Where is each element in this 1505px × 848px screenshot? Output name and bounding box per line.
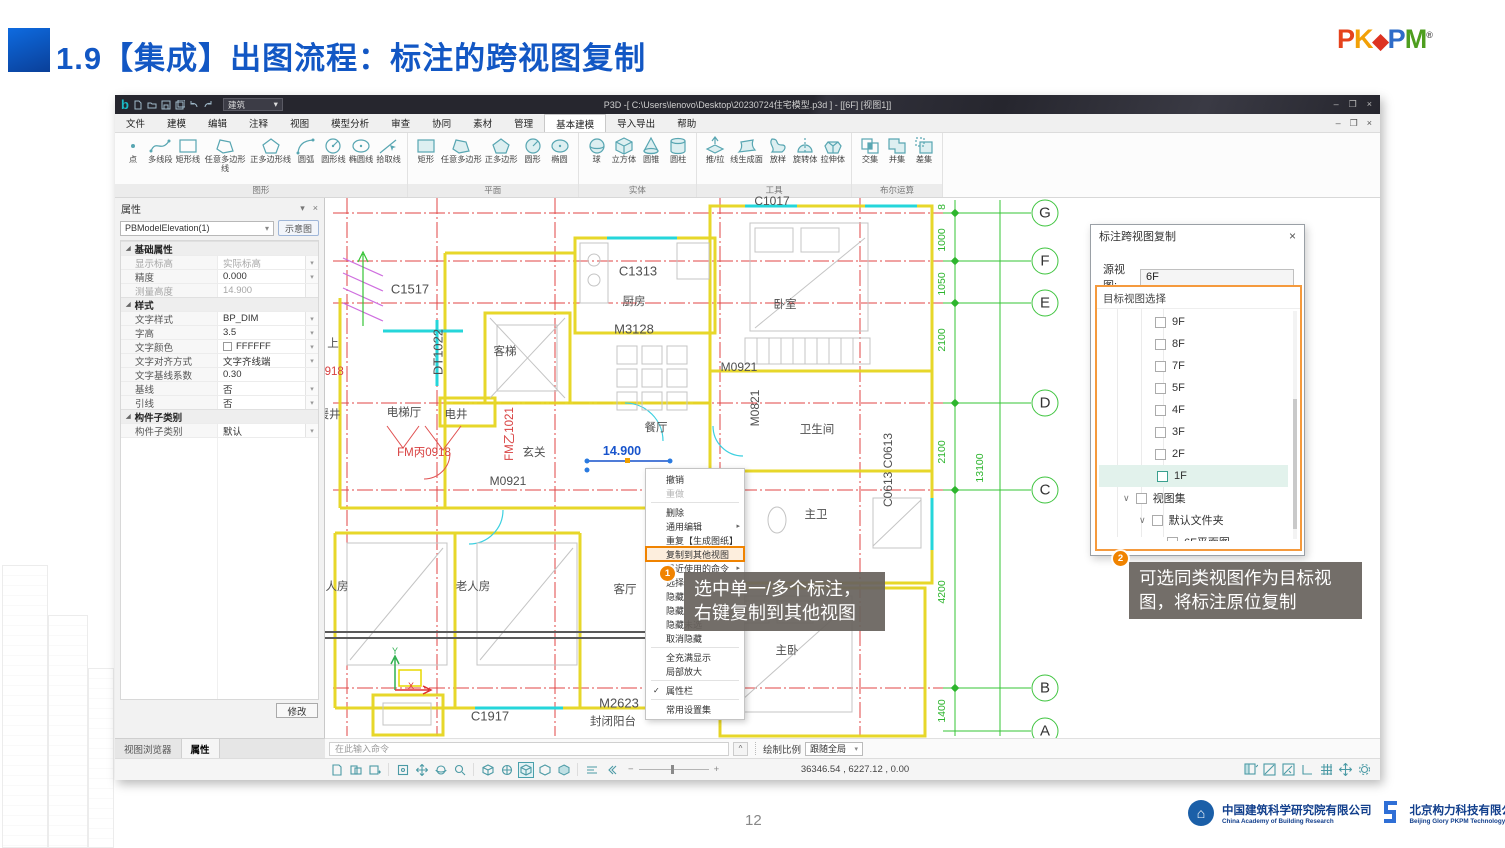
cursor-coordinates: 36346.54 , 6227.12 , 0.00 (745, 764, 965, 775)
room-label: 厨房 (623, 293, 646, 309)
checkbox[interactable] (1152, 515, 1163, 526)
pkpm-logo: PK◆PM® (1337, 24, 1433, 55)
scale-label: 绘制比例 (763, 742, 801, 756)
pan-icon[interactable] (415, 763, 429, 777)
tool-rect-line[interactable]: 矩形线 (175, 136, 202, 165)
grid-letter: D (1040, 395, 1051, 412)
chevron-down-icon: ▾ (274, 99, 278, 110)
window-title: P3D -[ C:\Users\lenovo\Desktop\20230724住… (115, 98, 1380, 111)
checkbox[interactable] (1136, 493, 1147, 504)
tree-node-default-folder[interactable]: ∨默认文件夹 (1139, 509, 1224, 531)
room-label: 人房 (326, 578, 349, 594)
view-tree: 9F 8F 7F 5F 4F 3F 2F 1F ∨视图集 ∨默认文件夹 6F平面… (1097, 309, 1300, 541)
zoom-extents-icon[interactable] (396, 763, 410, 777)
cross-view-copy-dialog: 标注跨视图复制 × 源视图: 目标视图选择 9F 8F 7F 5F 4F 3F … (1090, 224, 1305, 556)
checkmark-icon: ✓ (653, 686, 660, 695)
element-type-dropdown[interactable]: PBModelElevation(1)▾ (120, 221, 274, 236)
ctx-repeat[interactable]: 重复【生成图纸】 (646, 533, 744, 547)
polygon-outline-icon (213, 136, 237, 156)
chevron-expand-icon[interactable]: ∨ (1123, 493, 1130, 504)
tree-item-5f[interactable]: 5F (1155, 377, 1185, 399)
building-watermark (88, 668, 114, 848)
tab-view-browser[interactable]: 视图浏览器 (115, 739, 181, 758)
dimension-text: 1000 (936, 228, 948, 251)
tool-label: 多线段 (148, 156, 173, 165)
collapse-triangle-icon: ◢ (126, 413, 131, 420)
tool-loft[interactable]: 放样 (765, 136, 791, 165)
grid-bubble: G (1032, 200, 1059, 227)
rectangle-outline-icon (176, 136, 200, 156)
chevron-down-icon[interactable]: ▾ (305, 326, 318, 339)
view-cube-icon[interactable] (481, 763, 495, 777)
grid-bubble: F (1032, 248, 1059, 275)
grid-bubble: E (1032, 290, 1059, 317)
tool-sphere[interactable]: 球 (584, 136, 610, 165)
revolve-icon (793, 136, 817, 156)
tool-cylinder[interactable]: 圆柱 (665, 136, 691, 165)
tool-label: 拾取线 (376, 156, 401, 165)
logo-letter: K (1354, 24, 1373, 54)
dimension-text: 2100 (936, 328, 948, 351)
ortho-icon[interactable] (1301, 763, 1315, 777)
tool-point[interactable]: 点 (120, 136, 146, 165)
ctx-copy-to-other-views[interactable]: 复制到其他视图 (646, 547, 744, 561)
menu-analysis[interactable]: 模型分析 (320, 114, 380, 132)
building-watermark (2, 565, 48, 848)
display-settings-icon[interactable] (585, 763, 599, 777)
tool-regular-polygon-line[interactable]: 正多边形线 (249, 136, 292, 165)
tool-polyline[interactable]: 多线段 (147, 136, 174, 165)
step-badge-2: 2 (1113, 551, 1128, 566)
tool-label: 圆柱 (670, 156, 686, 165)
glory-pkpm-logo-icon (1380, 800, 1402, 826)
tree-node-viewset[interactable]: ∨视图集 (1123, 487, 1186, 509)
tool-label: 球 (592, 156, 600, 165)
command-input[interactable] (329, 742, 729, 756)
menu-material[interactable]: 素材 (462, 114, 503, 132)
cube-icon (612, 136, 636, 156)
dialog-scrollbar[interactable] (1293, 311, 1297, 539)
fire-door-tag: FM丙0918 (397, 444, 451, 460)
tab-properties[interactable]: 属性 (181, 739, 220, 758)
zoom-icon[interactable] (453, 763, 467, 777)
dialog-close-icon[interactable]: × (1289, 229, 1296, 243)
ctx-undo[interactable]: 撤销 (646, 472, 744, 486)
grid-icon[interactable] (1320, 763, 1334, 777)
add-window-icon[interactable] (368, 763, 382, 777)
ctx-properties-bar[interactable]: ✓属性栏 (646, 683, 744, 697)
tool-line-to-surface[interactable]: 线生成面 (729, 136, 764, 165)
circle-filled-icon (521, 136, 545, 156)
chevron-down-icon[interactable]: ▾ (305, 256, 318, 269)
tool-label: 椭圆 (551, 156, 567, 165)
room-label: 卫生间 (800, 421, 835, 437)
menu-view[interactable]: 视图 (279, 114, 320, 132)
menu-annotate[interactable]: 注释 (238, 114, 279, 132)
page-title: 1.9【集成】出图流程：标注的跨视图复制 (56, 33, 646, 78)
logo-letter: M (1405, 24, 1427, 54)
room-label: 客厅 (614, 581, 637, 597)
element-tag: M0921 (490, 474, 527, 488)
registered-mark: ® (1426, 30, 1433, 40)
doc-restore-button[interactable]: ❐ (1350, 118, 1358, 129)
tool-label: 交集 (862, 156, 878, 165)
tree-item-6f-plan[interactable]: 6F平面图 (1167, 531, 1230, 541)
loft-icon (766, 136, 790, 156)
tool-ellipse[interactable]: 椭圆 (547, 136, 573, 165)
dimension-text: 1050 (936, 272, 948, 295)
grid-letter: C (1040, 482, 1051, 499)
discipline-value: 建筑 (228, 99, 245, 111)
room-label: 玄关 (523, 444, 546, 460)
building-watermark (48, 615, 88, 848)
tool-label: 圆形 (524, 156, 540, 165)
ctx-zoom-window[interactable]: 局部放大 (646, 664, 744, 678)
ribbon: 点 多线段 矩形线 任意多边形线 正多边形线 圆弧 圆形线 椭圆线 拾取线 图形… (115, 133, 1380, 198)
viewport-toggle-icon[interactable] (1244, 763, 1258, 777)
property-row: 精度0.000▾ (121, 269, 318, 283)
tool-arc[interactable]: 圆弧 (293, 136, 319, 165)
ellipse-filled-icon (548, 136, 572, 156)
logo-diamond-icon: ◆ (1373, 30, 1388, 53)
menu-manage[interactable]: 管理 (503, 114, 544, 132)
ctx-label: 属性栏 (666, 684, 693, 697)
room-label: 老人房 (456, 578, 491, 594)
tool-label: 椭圆线 (349, 156, 374, 165)
menu-collaborate[interactable]: 协同 (421, 114, 462, 132)
navigate-icon[interactable] (1339, 763, 1353, 777)
axis-x-label: X (408, 681, 414, 691)
tool-cube[interactable]: 立方体 (611, 136, 638, 165)
grid-letter: B (1040, 680, 1050, 697)
shaded-view-icon[interactable] (519, 763, 533, 777)
orbit-icon[interactable] (434, 763, 448, 777)
tree-item-9f[interactable]: 9F (1155, 311, 1185, 333)
close-button[interactable]: × (1367, 99, 1372, 110)
property-row: 测量高度14.900 (121, 283, 318, 297)
panel-collapse-icon[interactable]: ▾ (300, 203, 305, 214)
tree-item-1f[interactable]: 1F (1099, 465, 1288, 487)
tool-ellipse-line[interactable]: 椭圆线 (348, 136, 375, 165)
dimension-text: 13100 (974, 453, 986, 482)
chevron-down-icon: ▾ (265, 224, 269, 233)
callout-text: 右键复制到其他视图 (694, 601, 875, 625)
property-row: 文字样式BP_DIM▾ (121, 311, 318, 325)
chevron-down-icon[interactable]: ▾ (305, 270, 318, 283)
chevron-down-icon[interactable]: ▾ (305, 340, 318, 353)
tool-label: 任意多边形线 (203, 156, 247, 174)
grid-letter: A (1040, 723, 1050, 740)
checkbox[interactable] (1155, 449, 1166, 460)
menu-file[interactable]: 文件 (115, 114, 156, 132)
tree-item-8f[interactable]: 8F (1155, 333, 1185, 355)
property-grid-empty (121, 437, 318, 699)
tree-item-2f[interactable]: 2F (1155, 443, 1185, 465)
rectangle-filled-icon (414, 136, 438, 156)
room-label: 上 (327, 335, 339, 351)
zoom-slider[interactable]: − + (628, 764, 719, 775)
pentagon-filled-icon (489, 136, 513, 156)
panel-close-icon[interactable]: × (313, 203, 318, 214)
target-view-label: 目标视图选择 (1097, 287, 1300, 309)
property-row: 字高3.5▾ (121, 325, 318, 339)
chevron-down-icon[interactable]: ▾ (305, 312, 318, 325)
tool-revolve[interactable]: 旋转体 (792, 136, 819, 165)
tool-subtract[interactable]: 差集 (911, 136, 937, 165)
menubar: 文件 建模 编辑 注释 视图 模型分析 审查 协同 素材 管理 基本建模 导入导… (115, 114, 1380, 133)
minimize-button[interactable]: – (1334, 99, 1339, 110)
element-type-value: PBModelElevation(1) (125, 223, 210, 233)
callout-text: 图，将标注原位复制 (1139, 591, 1352, 615)
chevron-down-icon[interactable]: ▾ (305, 424, 318, 437)
quick-access-toolbar: b 建筑 ▾ (115, 98, 283, 111)
modify-button[interactable]: 修改 (276, 703, 318, 718)
submenu-arrow-icon: ▸ (736, 564, 740, 572)
ribbon-group-label: 实体 (579, 184, 697, 197)
grid-bubble: C (1032, 477, 1059, 504)
slope-snap-icon[interactable] (1263, 763, 1277, 777)
chevron-down-icon[interactable]: ▾ (305, 354, 318, 367)
scale-value: 跟随全局 (810, 742, 846, 755)
element-tag: C1313 (619, 264, 657, 279)
tool-label: 点 (129, 156, 137, 165)
dialog-title: 标注跨视图复制 (1099, 228, 1176, 244)
room-label: 封闭阳台 (590, 713, 636, 729)
panel-tabs: 视图浏览器 属性 (115, 738, 325, 758)
tool-label: 并集 (889, 156, 905, 165)
ctx-common-settings[interactable]: 常用设置集 (646, 702, 744, 716)
source-view-input[interactable] (1140, 269, 1294, 286)
menu-help[interactable]: 帮助 (666, 114, 707, 132)
element-tag: DT1022 (431, 329, 446, 375)
tool-label: 拉伸体 (820, 156, 845, 165)
room-label: 餐厅 (645, 419, 668, 435)
collapse-chevrons-icon[interactable] (604, 763, 618, 777)
surface-from-lines-icon (735, 136, 759, 156)
view-sphere-icon[interactable] (500, 763, 514, 777)
chevron-expand-icon[interactable]: ∨ (1139, 515, 1146, 526)
checkbox[interactable] (1167, 537, 1178, 542)
tool-label: 推/拉 (706, 156, 725, 165)
target-view-groupbox: 目标视图选择 9F 8F 7F 5F 4F 3F 2F 1F ∨视图集 ∨默认文… (1095, 285, 1302, 551)
page-number: 12 (745, 812, 762, 829)
tool-circle-line[interactable]: 圆形线 (320, 136, 347, 165)
ribbon-group-label: 布尔运算 (852, 184, 942, 197)
tool-push-pull[interactable]: 推/拉 (702, 136, 728, 165)
checkbox[interactable] (1155, 339, 1166, 350)
scale-dropdown[interactable]: 跟随全局 ▾ (805, 742, 863, 756)
org-name-cn: 北京构力科技有限公司 (1410, 802, 1505, 818)
slider-thumb[interactable] (671, 765, 674, 774)
dimension-text: 8 (936, 204, 948, 210)
checkbox[interactable] (1155, 317, 1166, 328)
cylinder-icon (666, 136, 690, 156)
room-label: 电梯厅 (387, 404, 422, 420)
menu-import-export[interactable]: 导入导出 (606, 114, 666, 132)
arc-icon (294, 136, 318, 156)
ribbon-group-shapes: 点 多线段 矩形线 任意多边形线 正多边形线 圆弧 圆形线 椭圆线 拾取线 图形 (115, 133, 408, 197)
circle-outline-icon (321, 136, 345, 156)
command-collapse-icon[interactable]: ^ (733, 742, 748, 756)
solid-view-icon[interactable] (557, 763, 571, 777)
tool-union[interactable]: 并集 (884, 136, 910, 165)
ribbon-group-boolean: 交集 并集 差集 布尔运算 (852, 133, 943, 197)
redo-icon[interactable] (203, 100, 213, 110)
collapse-triangle-icon: ◢ (126, 245, 131, 252)
wireframe-view-icon[interactable] (538, 763, 552, 777)
polar-snap-icon[interactable] (1282, 763, 1296, 777)
checkbox[interactable] (1155, 427, 1166, 438)
doc-minimize-button[interactable]: – (1336, 118, 1341, 128)
menu-review[interactable]: 审查 (380, 114, 421, 132)
app-logo-icon[interactable]: b (121, 98, 129, 111)
checkbox[interactable] (1155, 405, 1166, 416)
zoom-out-icon[interactable]: − (628, 764, 634, 775)
property-row: 文字颜色FFFFFF▾ (121, 339, 318, 353)
selected-dimension[interactable]: 14.900 (603, 444, 641, 458)
discipline-dropdown[interactable]: 建筑 ▾ (223, 98, 283, 111)
logo-letter: P (1337, 24, 1354, 54)
tool-intersect[interactable]: 交集 (857, 136, 883, 165)
status-right-icons (1241, 763, 1380, 777)
tool-label: 正多边形线 (250, 156, 291, 165)
zoom-in-icon[interactable]: + (714, 764, 720, 775)
tool-rectangle[interactable]: 矩形 (413, 136, 439, 165)
polygon-filled-icon (449, 136, 473, 156)
ctx-zoom-extents[interactable]: 全充满显示 (646, 650, 744, 664)
push-pull-icon (703, 136, 727, 156)
save-as-icon[interactable] (175, 100, 185, 110)
ribbon-group-planes: 矩形 任意多边形 正多边形 圆形 椭圆 平面 (408, 133, 579, 197)
doc-close-button[interactable]: × (1367, 118, 1372, 128)
ctx-label: 通用编辑 (666, 520, 702, 533)
tool-label: 任意多边形 (441, 156, 482, 165)
command-bar: ^ 绘制比例 跟随全局 ▾ (325, 738, 1380, 758)
menu-model[interactable]: 建模 (156, 114, 197, 132)
callout-text: 选中单一/多个标注， (694, 577, 875, 601)
checkbox[interactable] (1155, 361, 1166, 372)
chevron-down-icon[interactable]: ▾ (305, 396, 318, 409)
tool-regular-polygon[interactable]: 正多边形 (484, 136, 519, 165)
polyline-icon (148, 136, 172, 156)
element-tag: M0921 (721, 360, 758, 374)
tree-item-4f[interactable]: 4F (1155, 399, 1185, 421)
property-row: 构件子类别默认▾ (121, 423, 318, 437)
property-row: 显示标高实际标高▾ (121, 255, 318, 269)
ctx-general-edit[interactable]: 通用编辑▸ (646, 519, 744, 533)
tool-cone[interactable]: 圆锥 (638, 136, 664, 165)
element-tag: C1017 (754, 194, 789, 208)
open-file-icon[interactable] (147, 100, 157, 110)
submenu-arrow-icon: ▸ (736, 522, 740, 530)
tool-any-polygon[interactable]: 任意多边形 (440, 136, 483, 165)
tool-label: 差集 (916, 156, 932, 165)
restore-button[interactable]: ❐ (1349, 99, 1357, 110)
section-title: 基础属性 (135, 242, 173, 256)
menu-edit[interactable]: 编辑 (197, 114, 238, 132)
dimension-text: 2100 (936, 440, 948, 463)
ribbon-group-label: 图形 (115, 184, 407, 197)
status-bar: − + 36346.54 , 6227.12 , 0.00 (115, 758, 1380, 780)
tool-label: 立方体 (612, 156, 637, 165)
section-header[interactable]: ◢样式 (121, 297, 318, 311)
gear-icon[interactable] (1358, 763, 1372, 777)
logo-letter: P (1388, 24, 1405, 54)
tree-item-7f[interactable]: 7F (1155, 355, 1185, 377)
sphere-icon (585, 136, 609, 156)
glory-text: 北京构力科技有限公司 Beijing Glory PKPM Technology… (1410, 802, 1505, 825)
title-accent-block (8, 28, 50, 72)
room-label: 电井 (445, 406, 468, 422)
ribbon-group-solids: 球 立方体 圆锥 圆柱 实体 (579, 133, 698, 197)
element-tag: M2623 (599, 696, 639, 711)
property-row: 引线否▾ (121, 395, 318, 409)
chevron-down-icon[interactable]: ▾ (305, 382, 318, 395)
checkbox[interactable] (1155, 383, 1166, 394)
section-title: 构件子类别 (135, 410, 183, 424)
checkbox[interactable] (1157, 471, 1168, 482)
properties-panel: 属性 ▾× PBModelElevation(1)▾ 示意图 ◢基础属性 显示标… (115, 198, 325, 738)
room-label: 主卧 (776, 642, 799, 658)
tool-circle[interactable]: 圆形 (520, 136, 546, 165)
section-header[interactable]: ◢基础属性 (121, 241, 318, 255)
axis-y-label: Y (392, 646, 398, 656)
menu-basic-modeling[interactable]: 基本建模 (544, 114, 606, 132)
property-row: 文字基线系数0.30 (121, 367, 318, 381)
tool-label: 放样 (770, 156, 786, 165)
preview-button[interactable]: 示意图 (278, 220, 319, 236)
grid-letter: E (1040, 295, 1050, 312)
undo-icon[interactable] (189, 100, 199, 110)
ctx-redo[interactable]: 重做 (646, 486, 744, 500)
element-tag: C1517 (391, 282, 429, 297)
tool-label: 矩形 (418, 156, 434, 165)
new-view-icon[interactable] (330, 763, 344, 777)
ctx-unhide[interactable]: 取消隐藏 (646, 631, 744, 645)
tree-item-3f[interactable]: 3F (1155, 421, 1185, 443)
new-file-icon[interactable] (133, 100, 143, 110)
dimension-text: 1400 (936, 699, 948, 722)
property-row: 基线否▾ (121, 381, 318, 395)
property-grid: ◢基础属性 显示标高实际标高▾ 精度0.000▾ 测量高度14.900 ◢样式 … (120, 240, 319, 700)
section-header[interactable]: ◢构件子类别 (121, 409, 318, 423)
viewports-icon[interactable] (349, 763, 363, 777)
org-name-cn: 中国建筑科学研究院有限公司 (1222, 802, 1372, 818)
grid-letter: G (1039, 205, 1051, 222)
tool-any-polygon-line[interactable]: 任意多边形线 (202, 136, 248, 174)
collapse-triangle-icon: ◢ (126, 301, 131, 308)
intersect-icon (858, 136, 882, 156)
ribbon-group-tools: 推/拉 线生成面 放样 旋转体 拉伸体 工具 (697, 133, 852, 197)
element-tag: M3128 (614, 322, 654, 337)
element-tag: M0821 (748, 390, 762, 427)
callout-1: 选中单一/多个标注， 右键复制到其他视图 (684, 572, 885, 631)
grid-bubble: D (1032, 390, 1059, 417)
grid-letter: F (1040, 253, 1049, 270)
grid-bubble: B (1032, 675, 1059, 702)
pick-line-icon (377, 136, 401, 156)
tool-pick-line[interactable]: 拾取线 (375, 136, 402, 165)
tool-extrude[interactable]: 拉伸体 (819, 136, 846, 165)
ctx-delete[interactable]: 删除 (646, 505, 744, 519)
cabr-text: 中国建筑科学研究院有限公司 China Academy of Building … (1222, 802, 1372, 825)
room-label: 卧室 (774, 296, 797, 312)
org-name-en: Beijing Glory PKPM Technology Co.,Ltd. (1410, 818, 1505, 825)
save-icon[interactable] (161, 100, 171, 110)
cabr-logo-icon: ⌂ (1188, 800, 1214, 826)
element-tag: C1917 (471, 709, 509, 724)
section-title: 样式 (135, 298, 154, 312)
